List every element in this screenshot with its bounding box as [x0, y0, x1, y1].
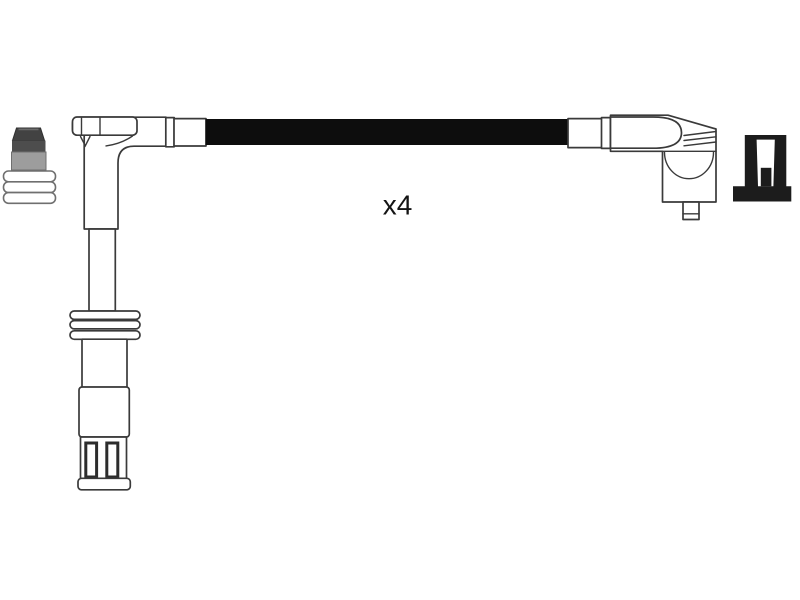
coil-boot-ring	[602, 118, 611, 149]
boot-rib-3	[70, 331, 140, 340]
boot-rib-1	[70, 311, 140, 319]
ignition-lead-cable	[206, 119, 570, 145]
product-illustration: x4	[0, 0, 800, 600]
boot-ring	[166, 118, 174, 147]
boot-slot-left	[86, 443, 97, 477]
coil-boot-capsule	[611, 117, 682, 148]
boot-ferrule	[174, 119, 206, 146]
boot-end-cap	[78, 478, 130, 490]
quantity-label: x4	[383, 190, 413, 221]
boot-rib-2	[70, 321, 140, 329]
boot-slot-right	[107, 443, 118, 477]
coil-boot-ferrule	[568, 119, 602, 148]
nut-band	[12, 141, 46, 153]
terminal-clip-inner-post	[761, 168, 772, 187]
boot-shaft	[89, 229, 115, 311]
canvas-background	[0, 0, 800, 600]
nut-rib-2	[4, 182, 56, 193]
boot-block	[79, 387, 129, 437]
boot-lower-tube	[82, 339, 127, 387]
coil-boot-tip	[683, 202, 699, 220]
illustration-canvas: x4	[0, 0, 800, 600]
nut-rib-3	[4, 193, 56, 204]
nut-collar	[12, 152, 47, 170]
nut-rib-1	[4, 171, 56, 182]
